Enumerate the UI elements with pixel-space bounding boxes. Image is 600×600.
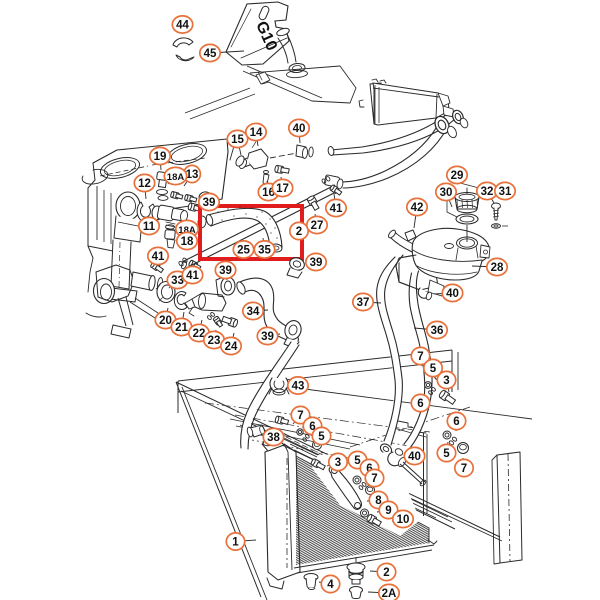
svg-text:38: 38 (267, 432, 280, 444)
svg-text:35: 35 (258, 245, 271, 257)
svg-text:6: 6 (453, 416, 459, 428)
svg-text:23: 23 (208, 335, 221, 347)
svg-text:2: 2 (383, 567, 389, 579)
svg-text:7: 7 (417, 351, 423, 363)
svg-text:7: 7 (297, 410, 303, 422)
svg-text:36: 36 (431, 325, 444, 337)
svg-text:3: 3 (335, 457, 341, 469)
svg-text:5: 5 (443, 448, 450, 460)
svg-text:40: 40 (446, 288, 459, 300)
svg-text:18A: 18A (167, 172, 185, 183)
svg-text:5: 5 (430, 363, 437, 375)
svg-text:45: 45 (204, 48, 217, 60)
svg-text:21: 21 (175, 322, 188, 334)
svg-text:7: 7 (461, 463, 467, 475)
svg-text:3: 3 (443, 375, 449, 387)
svg-text:17: 17 (276, 183, 289, 195)
svg-text:2: 2 (296, 226, 302, 238)
svg-text:39: 39 (219, 265, 232, 277)
svg-text:40: 40 (293, 123, 306, 135)
svg-text:39: 39 (261, 331, 274, 343)
svg-text:24: 24 (225, 341, 238, 353)
svg-text:19: 19 (154, 151, 167, 163)
svg-text:32: 32 (481, 186, 494, 198)
svg-text:15: 15 (231, 134, 244, 146)
svg-text:11: 11 (143, 221, 156, 233)
svg-text:37: 37 (357, 297, 370, 309)
svg-text:2A: 2A (382, 588, 397, 600)
svg-text:6: 6 (417, 398, 423, 410)
svg-text:42: 42 (411, 202, 424, 214)
svg-text:10: 10 (397, 514, 410, 526)
svg-text:41: 41 (186, 270, 199, 282)
svg-text:14: 14 (250, 127, 263, 139)
svg-text:27: 27 (311, 220, 324, 232)
svg-text:12: 12 (138, 178, 151, 190)
svg-text:20: 20 (159, 315, 172, 327)
svg-text:34: 34 (247, 306, 260, 318)
svg-text:1: 1 (232, 537, 239, 549)
svg-text:5: 5 (318, 431, 325, 443)
svg-text:13: 13 (186, 169, 199, 181)
svg-text:31: 31 (499, 186, 512, 198)
svg-text:29: 29 (451, 170, 464, 182)
svg-text:39: 39 (310, 257, 323, 269)
svg-text:28: 28 (491, 262, 504, 274)
svg-text:44: 44 (176, 20, 189, 32)
svg-text:43: 43 (292, 381, 305, 393)
svg-text:41: 41 (152, 251, 165, 263)
svg-text:30: 30 (440, 187, 453, 199)
svg-text:39: 39 (203, 197, 216, 209)
svg-text:18: 18 (181, 236, 194, 248)
svg-text:40: 40 (408, 451, 421, 463)
svg-text:9: 9 (385, 505, 391, 517)
svg-text:7: 7 (371, 473, 377, 485)
svg-text:25: 25 (237, 245, 250, 257)
svg-text:41: 41 (330, 203, 343, 215)
svg-text:4: 4 (327, 579, 334, 591)
